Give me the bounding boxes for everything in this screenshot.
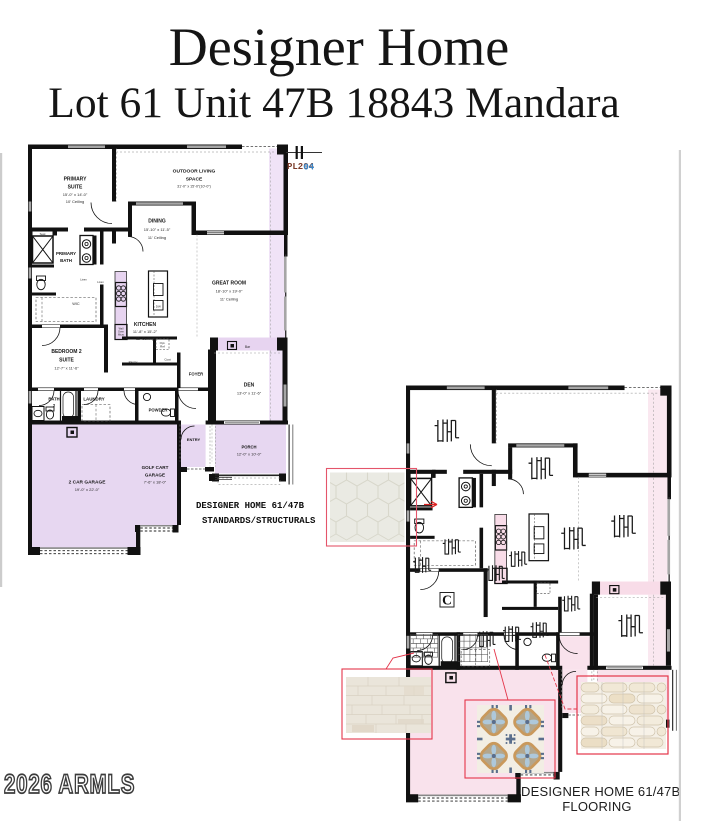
svg-text:13'-0" x 11'-6": 13'-0" x 11'-6" — [237, 391, 262, 396]
svg-text:ENTRY: ENTRY — [187, 437, 201, 442]
svg-text:Bar: Bar — [245, 345, 251, 349]
svg-text:LAUNDRY: LAUNDRY — [83, 397, 104, 402]
svg-text:PRIMARY: PRIMARY — [64, 177, 88, 183]
svg-text:BATH: BATH — [60, 258, 72, 263]
svg-text:GOLF CART: GOLF CART — [142, 465, 169, 470]
svg-text:12'-7" x 11'-6": 12'-7" x 11'-6" — [54, 366, 79, 371]
svg-text:DW: DW — [156, 305, 161, 309]
svg-text:C: C — [442, 593, 452, 608]
svg-text:DINING: DINING — [148, 219, 166, 225]
svg-text:SPACE: SPACE — [186, 177, 203, 183]
svg-text:15'-0" x 14'-0": 15'-0" x 14'-0" — [63, 192, 88, 197]
svg-text:GARAGE: GARAGE — [145, 473, 165, 478]
svg-text:PORCH: PORCH — [241, 445, 256, 450]
svg-text:Seat: Seat — [40, 232, 46, 236]
svg-text:15'-10" x 11'-5": 15'-10" x 11'-5" — [144, 227, 171, 232]
svg-text:31'-0" x 15'-0"(10'-0"): 31'-0" x 15'-0"(10'-0") — [177, 185, 211, 189]
svg-text:04: 04 — [303, 163, 314, 173]
svg-text:GREAT ROOM: GREAT ROOM — [212, 281, 246, 287]
svg-text:11' Ceiling: 11' Ceiling — [136, 336, 154, 341]
svg-text:11'-8" x 15'-2": 11'-8" x 15'-2" — [133, 329, 158, 334]
svg-text:Coat: Coat — [164, 358, 171, 362]
svg-text:FOYER: FOYER — [189, 372, 203, 377]
svg-text:KITCHEN: KITCHEN — [134, 322, 157, 328]
svg-text:7'-6" x 18'-0": 7'-6" x 18'-0" — [144, 480, 167, 485]
svg-text:11' Ceiling: 11' Ceiling — [220, 297, 238, 302]
svg-text:10' Ceiling: 10' Ceiling — [66, 199, 85, 204]
svg-text:2: 2 — [53, 403, 56, 408]
svg-text:19'-0" x 22'-0": 19'-0" x 22'-0" — [75, 487, 100, 492]
svg-text:DEN: DEN — [244, 383, 255, 389]
svg-text:Pantry: Pantry — [129, 360, 138, 364]
svg-text:POWDER: POWDER — [149, 408, 168, 413]
svg-text:11' Ceiling: 11' Ceiling — [148, 235, 166, 240]
svg-text:BATH: BATH — [48, 397, 59, 402]
svg-text:12'-0" x 10'-0": 12'-0" x 10'-0" — [237, 452, 262, 457]
svg-text:Ref: Ref — [160, 345, 165, 349]
svg-text:18'-10" x 19'-0": 18'-10" x 19'-0" — [216, 289, 243, 294]
svg-text:PRIMARY: PRIMARY — [56, 251, 76, 256]
svg-text:OUTDOOR LIVING: OUTDOOR LIVING — [173, 169, 216, 175]
svg-text:Linen: Linen — [80, 278, 87, 282]
svg-text:Micro: Micro — [118, 334, 125, 337]
svg-text:2 CAR GARAGE: 2 CAR GARAGE — [69, 480, 107, 486]
svg-text:SUITE: SUITE — [68, 185, 83, 191]
svg-text:Linen: Linen — [97, 280, 104, 284]
svg-text:BEDROOM 2: BEDROOM 2 — [51, 349, 82, 355]
svg-text:WIC: WIC — [72, 302, 80, 306]
svg-text:SUITE: SUITE — [59, 358, 74, 364]
